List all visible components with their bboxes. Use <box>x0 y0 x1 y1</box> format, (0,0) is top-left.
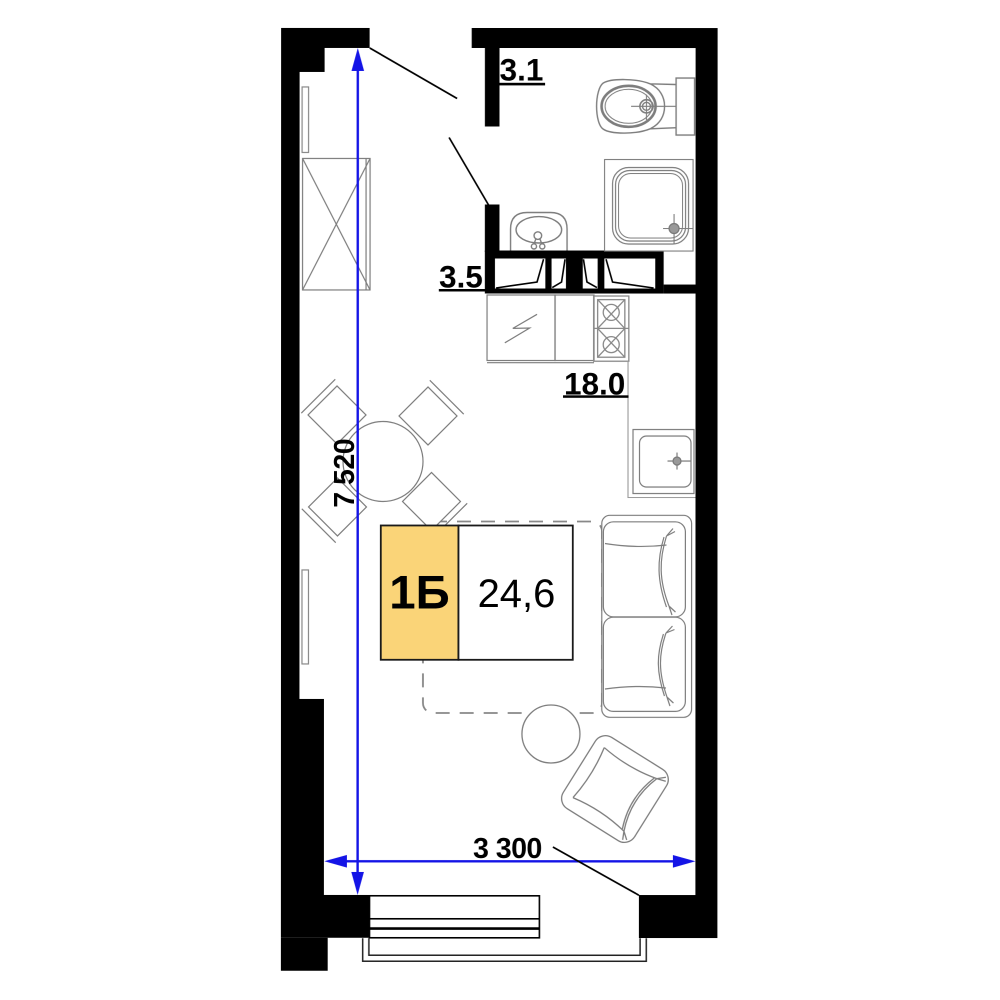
svg-text:7 520: 7 520 <box>329 439 361 508</box>
svg-text:3.1: 3.1 <box>500 51 544 87</box>
svg-text:3 300: 3 300 <box>473 833 542 865</box>
svg-text:1Б: 1Б <box>389 566 450 619</box>
svg-text:24,6: 24,6 <box>478 572 556 616</box>
